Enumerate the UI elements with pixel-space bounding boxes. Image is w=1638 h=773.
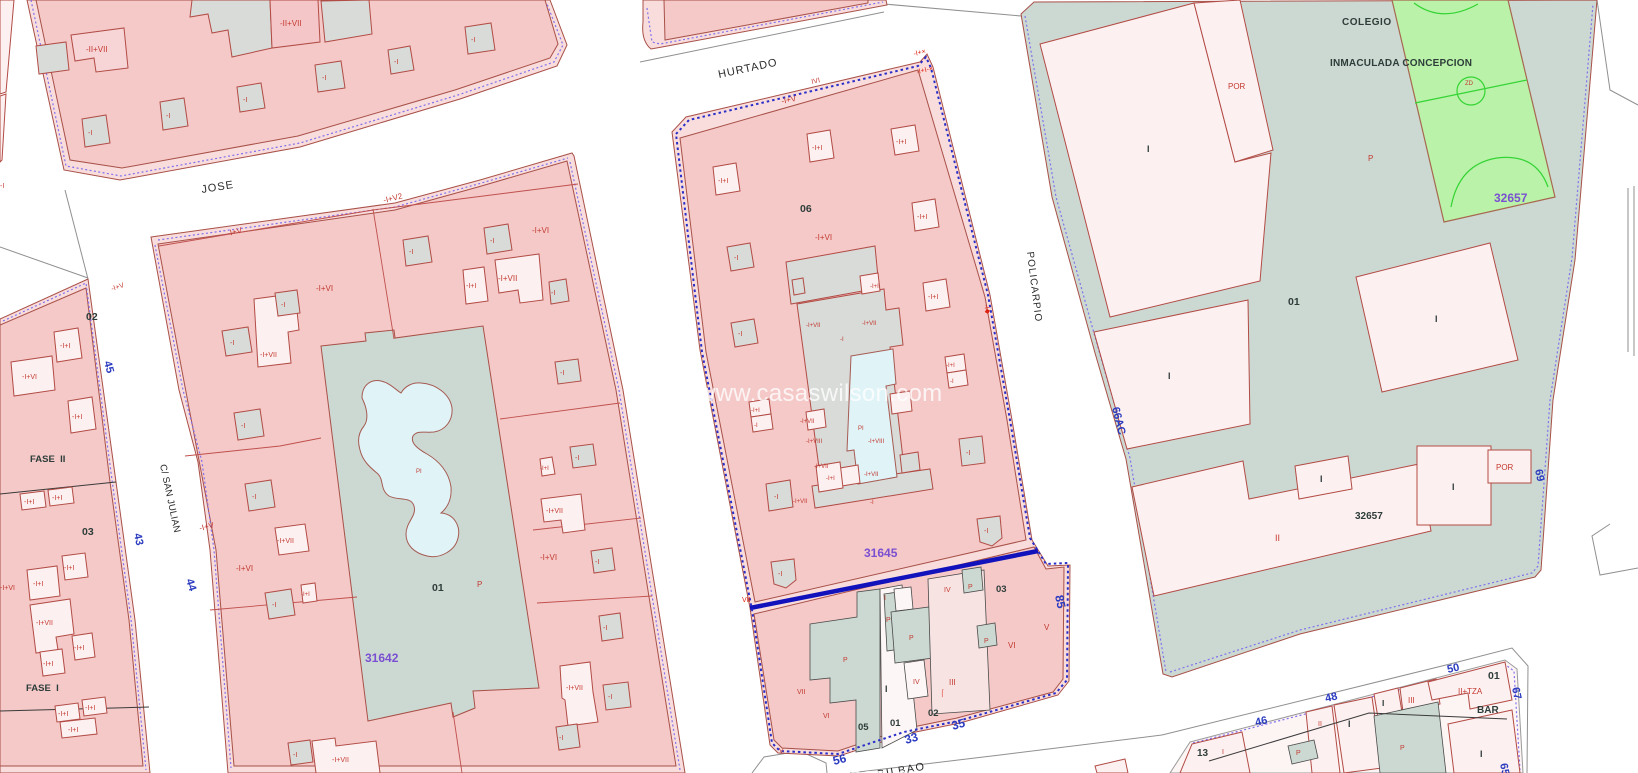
svg-text:-I+I: -I+I xyxy=(896,139,906,146)
svg-text:-I: -I xyxy=(774,494,778,501)
svg-text:I: I xyxy=(1480,749,1483,759)
svg-text:-I+I: -I+I xyxy=(301,592,310,598)
svg-text:13: 13 xyxy=(1197,748,1209,759)
svg-text:-I+I: -I+I xyxy=(24,499,34,506)
svg-text:IV: IV xyxy=(944,587,951,594)
svg-text:ZD: ZD xyxy=(1465,81,1474,87)
svg-text:-I+I: -I+I xyxy=(466,283,476,290)
svg-text:-I+I: -I+I xyxy=(68,727,78,734)
svg-text:I: I xyxy=(1147,144,1150,154)
svg-text:-I+VII: -I+VII xyxy=(332,757,349,764)
svg-text:69: 69 xyxy=(1532,468,1546,482)
svg-text:I: I xyxy=(1348,719,1351,729)
svg-text:02: 02 xyxy=(86,311,98,323)
svg-text:III: III xyxy=(1408,696,1415,705)
svg-text:-I+VII: -I+VII xyxy=(566,685,583,692)
svg-text:INMACULADA CONCEPCION: INMACULADA CONCEPCION xyxy=(1330,58,1472,69)
svg-text:VII: VII xyxy=(742,597,751,604)
svg-text:www.casaswilson.com: www.casaswilson.com xyxy=(697,380,942,407)
svg-text:-II+VII: -II+VII xyxy=(280,19,302,28)
svg-text:P: P xyxy=(1368,154,1373,163)
svg-text:-I+I: -I+I xyxy=(812,145,822,152)
svg-text:www.casaswilson.com: www.casaswilson.com xyxy=(697,763,942,773)
svg-text:-I: -I xyxy=(608,694,612,701)
svg-text:POR: POR xyxy=(1496,463,1514,472)
svg-text:67: 67 xyxy=(1509,686,1523,700)
svg-text:31645: 31645 xyxy=(864,546,898,560)
svg-text:-I+I: -I+I xyxy=(826,476,835,482)
svg-text:-I+I: -I+I xyxy=(60,343,70,350)
svg-text:02: 02 xyxy=(928,708,939,719)
svg-text:V: V xyxy=(1044,623,1050,632)
svg-text:-I: -I xyxy=(252,494,256,501)
svg-text:-I+I: -I+I xyxy=(870,284,879,290)
svg-text:-I: -I xyxy=(272,602,276,609)
svg-text:-I+VI: -I+VI xyxy=(540,553,557,562)
svg-text:-I: -I xyxy=(984,528,988,535)
svg-text:01: 01 xyxy=(1488,670,1500,682)
svg-text:-I+I: -I+I xyxy=(64,565,74,572)
svg-text:P: P xyxy=(984,638,989,645)
svg-text:-I: -I xyxy=(966,450,970,457)
svg-text:-I+VIII: -I+VIII xyxy=(868,439,885,445)
svg-text:-I: -I xyxy=(950,379,954,385)
svg-text:-I: -I xyxy=(559,735,563,742)
svg-text:-I+I: -I+I xyxy=(540,466,549,472)
svg-text:-I: -I xyxy=(241,423,245,430)
svg-text:-I: -I xyxy=(166,113,170,120)
svg-text:-I+VI: -I+VI xyxy=(0,585,15,592)
svg-text:-I: -I xyxy=(490,238,494,245)
svg-text:-I+I: -I+I xyxy=(946,363,955,369)
svg-text:-II+VII: -II+VII xyxy=(86,45,108,54)
svg-text:P: P xyxy=(1296,750,1301,757)
svg-text:-I: -I xyxy=(243,97,247,104)
svg-text:II+TZA: II+TZA xyxy=(1458,687,1483,696)
svg-text:V: V xyxy=(779,748,784,755)
svg-text:I: I xyxy=(1320,474,1323,484)
svg-text:-I: -I xyxy=(551,290,555,297)
svg-text:-I+VII: -I+VII xyxy=(546,508,563,515)
svg-text:-I+VII: -I+VII xyxy=(498,274,517,283)
svg-text:-I+I: -I+I xyxy=(917,214,927,221)
svg-text:FASE II: FASE II xyxy=(30,454,65,465)
svg-text:01: 01 xyxy=(1288,296,1300,308)
svg-text:VI: VI xyxy=(823,713,830,720)
svg-text:-I+VII: -I+VII xyxy=(800,419,815,425)
svg-text:-I+VII: -I+VII xyxy=(862,321,877,327)
svg-text:-I+VII: -I+VII xyxy=(277,538,294,545)
svg-text:-I: -I xyxy=(0,183,4,190)
svg-text:I: I xyxy=(1222,749,1224,756)
svg-text:-I: -I xyxy=(281,302,285,309)
svg-text:06: 06 xyxy=(800,203,812,215)
svg-text:I: I xyxy=(1435,314,1438,324)
svg-text:-I: -I xyxy=(575,455,579,462)
svg-text:03: 03 xyxy=(82,526,94,538)
svg-text:-I+I: -I+I xyxy=(33,581,43,588)
svg-text:-I+VII: -I+VII xyxy=(864,472,879,478)
svg-text:-I+VI: -I+VI xyxy=(22,374,37,381)
svg-text:03: 03 xyxy=(996,584,1007,595)
svg-text:-I+VI: -I+VI xyxy=(815,233,832,242)
svg-text:32657: 32657 xyxy=(1494,191,1528,205)
svg-text:III: III xyxy=(949,678,956,687)
svg-text:-I+I: -I+I xyxy=(718,178,728,185)
svg-text:-I: -I xyxy=(88,130,92,137)
svg-text:IV: IV xyxy=(913,679,920,686)
svg-text:-I: -I xyxy=(603,625,607,632)
svg-text:-I: -I xyxy=(595,559,599,566)
svg-text:05: 05 xyxy=(858,722,869,733)
svg-text:01: 01 xyxy=(432,582,444,594)
svg-text:PI: PI xyxy=(416,469,422,475)
svg-text:-I: -I xyxy=(409,249,413,256)
svg-text:-I: -I xyxy=(870,500,874,506)
svg-text:-I: -I xyxy=(322,75,326,82)
svg-text:65: 65 xyxy=(1497,762,1511,773)
svg-text:-I: -I xyxy=(754,423,758,429)
svg-text:-I+VII: -I+VII xyxy=(806,323,821,329)
svg-text:-I+VIII: -I+VIII xyxy=(806,439,823,445)
svg-text:I: I xyxy=(1452,482,1455,492)
svg-text:01: 01 xyxy=(890,718,901,729)
svg-text:-I: -I xyxy=(293,752,297,759)
svg-text:I: I xyxy=(885,684,888,694)
svg-text:-I+I: -I+I xyxy=(58,711,68,718)
svg-text:-I+VI: -I+VI xyxy=(532,226,549,235)
svg-text:31642: 31642 xyxy=(365,651,399,665)
svg-text:-I: -I xyxy=(230,340,234,347)
svg-text:COLEGIO: COLEGIO xyxy=(1342,17,1392,28)
svg-text:I: I xyxy=(1382,698,1384,708)
svg-text:-I: -I xyxy=(840,337,844,343)
svg-text:I: I xyxy=(1168,371,1171,381)
svg-text:-I+VII: -I+VII xyxy=(36,620,53,627)
svg-text:PI: PI xyxy=(858,426,864,432)
svg-text:-I+I: -I+I xyxy=(43,661,53,668)
svg-text:-I+I: -I+I xyxy=(74,645,84,652)
svg-text:-I: -I xyxy=(560,370,564,377)
svg-text:-I+I: -I+I xyxy=(928,294,938,301)
svg-text:POR: POR xyxy=(1228,82,1246,91)
svg-text:FASE I: FASE I xyxy=(26,683,59,694)
svg-text:-I: -I xyxy=(738,331,742,338)
svg-text:-I: -I xyxy=(471,37,475,44)
svg-text:-I+VII: -I+VII xyxy=(814,464,829,470)
svg-text:VII: VII xyxy=(797,689,806,696)
svg-text:-I: -I xyxy=(778,571,782,578)
svg-text:-I: -I xyxy=(734,255,738,262)
svg-text:P: P xyxy=(886,617,891,624)
svg-text:P: P xyxy=(477,580,482,589)
svg-text:P: P xyxy=(968,584,973,591)
svg-text:VI: VI xyxy=(1008,641,1016,650)
svg-text:II: II xyxy=(1275,533,1280,543)
svg-text:P: P xyxy=(1400,745,1405,752)
svg-text:-I+I: -I+I xyxy=(52,495,62,502)
svg-text:I: I xyxy=(884,595,886,602)
svg-text:⌠: ⌠ xyxy=(940,689,944,698)
svg-text:P: P xyxy=(909,635,914,642)
svg-text:32657: 32657 xyxy=(1355,511,1383,522)
svg-text:-I+I: -I+I xyxy=(72,414,82,421)
svg-text:-I+I: -I+I xyxy=(751,408,760,414)
svg-text:P: P xyxy=(843,657,848,664)
svg-text:-I+VII: -I+VII xyxy=(260,352,277,359)
svg-text:-I+VII: -I+VII xyxy=(793,499,808,505)
svg-text:-I+I: -I+I xyxy=(85,705,95,712)
svg-text:-I: -I xyxy=(394,59,398,66)
svg-text:-I+VI: -I+VI xyxy=(316,284,333,293)
svg-text:43: 43 xyxy=(131,532,145,546)
svg-text:-I+VI: -I+VI xyxy=(236,564,253,573)
